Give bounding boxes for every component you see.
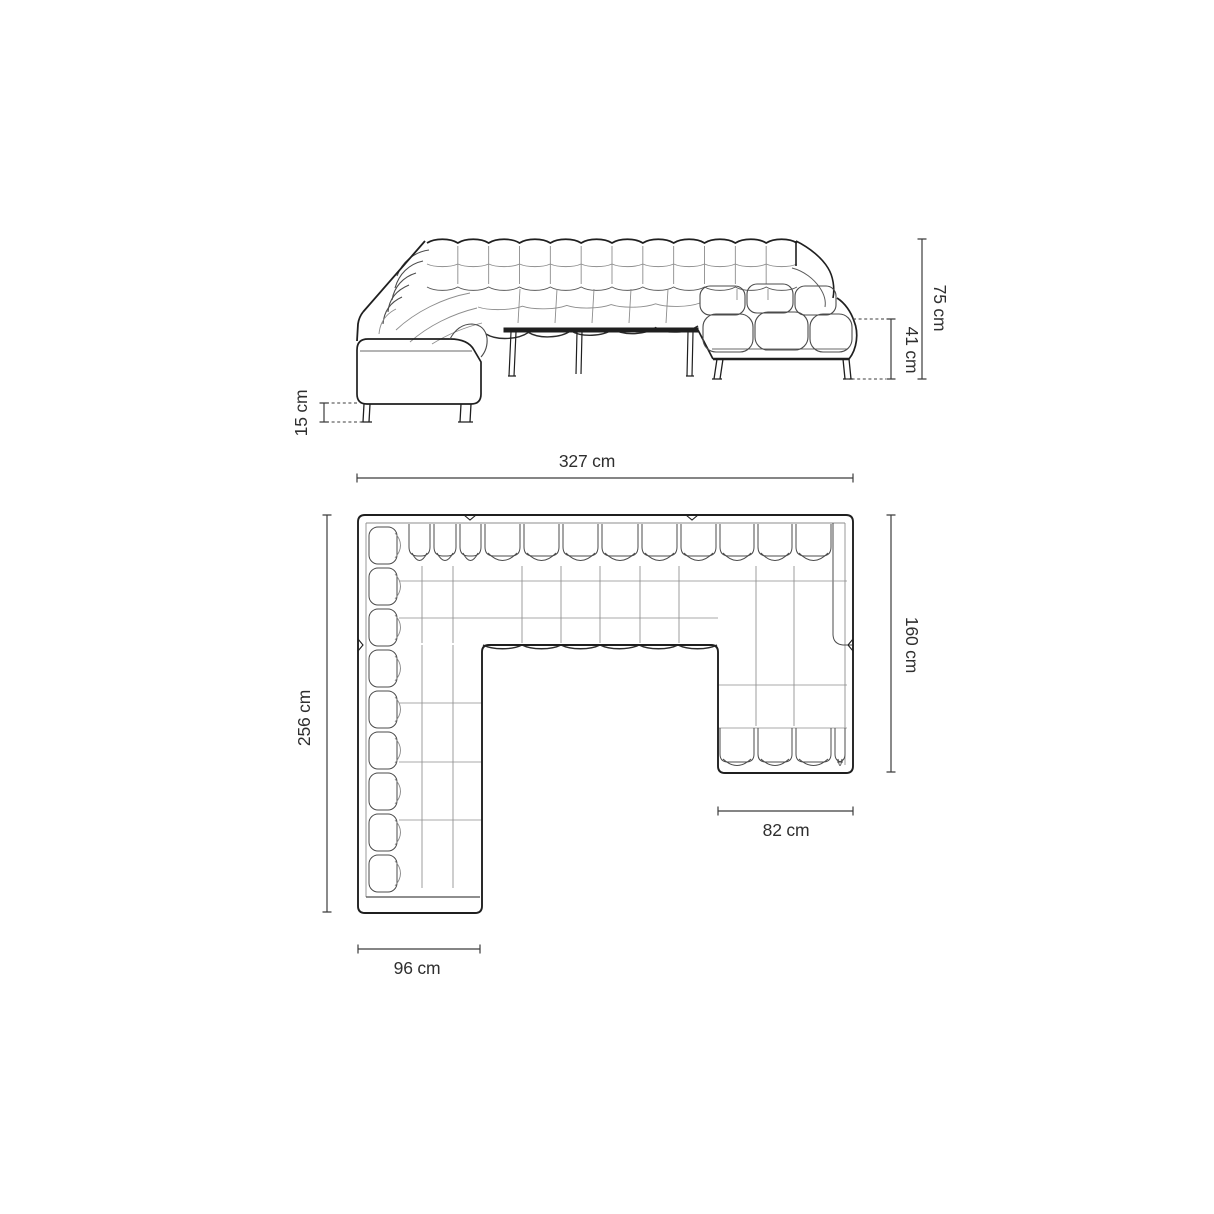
side-elevation-view: 75 cm 41 cm 15 cm [291,239,950,436]
dimension-chaise-width: 82 cm [718,807,853,841]
backrest-cushion-fold [437,553,453,561]
dimension-overall-depth: 256 cm [294,515,332,912]
arm-cushion-fold [395,533,401,558]
backrest-cushion-fold [684,553,713,561]
wing-cushion-arc [379,309,396,334]
arm-cushion [369,855,397,892]
grid-line-h-arm [399,703,482,820]
dimension-label-chaise-width: 82 cm [763,820,810,840]
dimension-chaise-depth: 160 cm [887,515,923,772]
chaise-cushions [700,284,852,352]
sofa-dimension-diagram: 75 cm 41 cm 15 cm [0,0,1214,1214]
dimension-line [887,319,896,379]
arm-cushion [369,609,397,646]
dimension-label-overall-height: 75 cm [930,285,950,332]
back-top-edge [427,239,797,243]
dimension-leg-height: 15 cm [291,390,364,437]
grid-lines-v [422,566,794,888]
backrest-cushion-fold [799,553,828,561]
plan-view-sofa-drawing [366,523,852,897]
backrest-cushion [758,524,792,556]
arm-cushion [369,691,397,728]
dimension-label-arm-width: 96 cm [394,958,441,978]
backrest-cushion-fold [645,553,674,561]
arm-cushion-fold [395,615,401,640]
backrest-cushion-fold [566,553,595,561]
chaise-bottom-cushion [835,728,845,762]
backrest-cushion [434,524,456,556]
diagram-canvas: 75 cm 41 cm 15 cm [0,0,1214,1214]
dimension-label-seat-height: 41 cm [902,327,922,374]
backrest-cushion [460,524,481,556]
chaise-bottom-cushion [796,728,831,762]
arm-cushion [369,773,397,810]
backrest-cushion-fold [605,553,635,561]
plan-outline [358,515,853,913]
backrest-cushion-fold [761,553,789,561]
arm-cushion-fold [395,861,401,886]
backrest-cushion [642,524,677,556]
backrest-cushion [563,524,598,556]
backrest-cushion-fold [723,553,751,561]
chaise-bottom-cushion [758,728,792,762]
dimension-arm-width: 96 cm [358,945,480,979]
back-cushion-separators [458,246,766,284]
backrest-cushion [681,524,716,556]
backrest-cushion [485,524,520,556]
backrest-cushion [796,524,831,556]
backrest-cushion-fold [488,553,517,561]
dimension-label-overall-depth: 256 cm [294,690,314,746]
backrest-cushion [409,524,430,556]
dimension-line [323,515,332,912]
dimension-line [320,403,329,422]
backrest-cushion-fold [412,553,427,561]
dimension-overall-width: 327 cm [357,451,853,483]
arm-cushion-fold [395,574,401,599]
arm-cushion-fold [395,820,401,845]
arm-cushion [369,527,397,564]
corner-seat-tuft [396,293,470,330]
arm-cushion [369,814,397,851]
chaise-armrest-strip [833,523,852,645]
arm-cushion [369,568,397,605]
section-notches [358,515,853,651]
backrest-cushion [602,524,638,556]
corner-seat-tuft [432,323,482,344]
dimension-label-leg-height: 15 cm [291,390,311,437]
arm-cushion [369,650,397,687]
arm-cushion-fold [395,697,401,722]
backrest-cushion-fold [527,553,556,561]
grid-line-h-chaise [718,685,847,728]
chaise-bottom-cushion [720,728,754,762]
dimension-seat-height: 41 cm [846,319,922,379]
arm-cushion [369,732,397,769]
dimension-line [358,945,480,954]
dimension-line [718,807,853,816]
dimension-label-chaise-depth: 160 cm [902,617,922,673]
backrest-cushion [524,524,559,556]
arm-cushion-fold [395,779,401,804]
backrest-cushion-fold [463,553,478,561]
arm-cushion-fold [395,656,401,681]
side-view-outline [357,241,857,422]
dimension-line [357,474,853,483]
backrest-cushion [720,524,754,556]
dimension-label-overall-width: 327 cm [559,451,615,471]
top-plan-view: 327 cm 256 cm 160 cm 82 cm 96 cm [294,451,922,978]
dimension-line [887,515,896,772]
arm-cushion-fold [395,738,401,763]
